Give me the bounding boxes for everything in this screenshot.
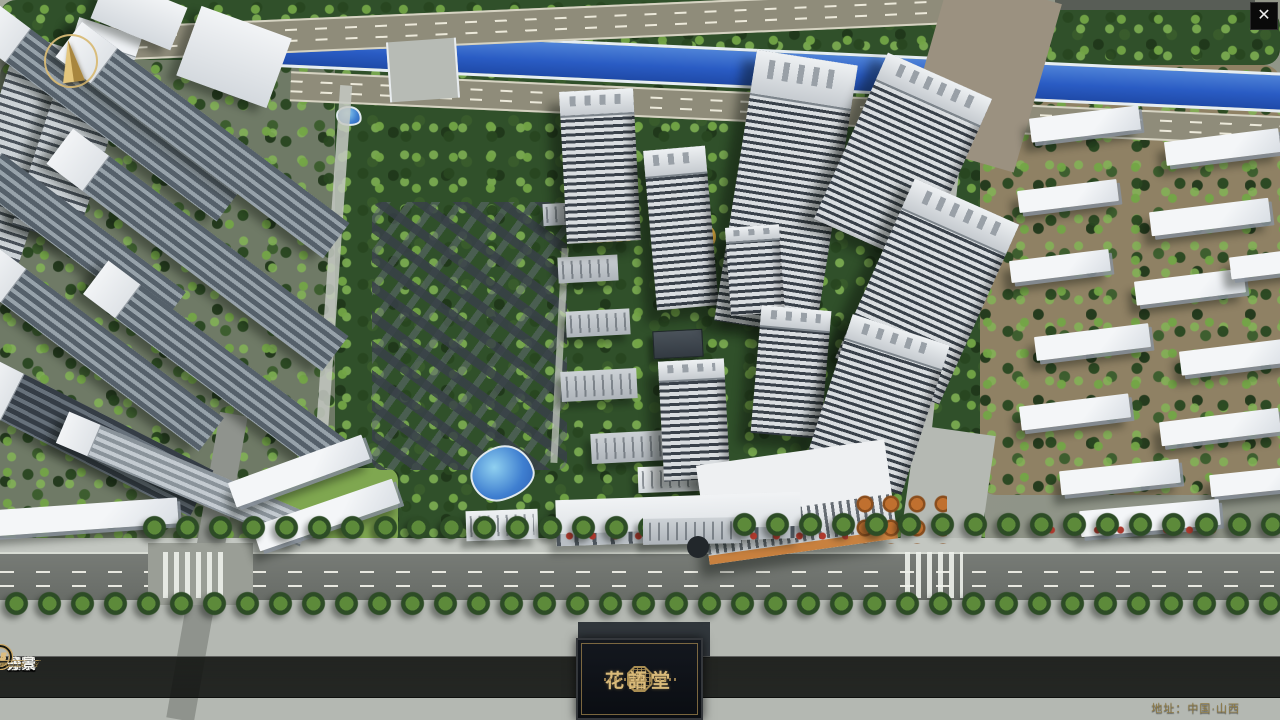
tree-row [138, 514, 643, 554]
bridge [386, 38, 460, 103]
entrance-plaza-circle [687, 536, 709, 558]
project-address: 地址：中国·山西 [1151, 700, 1240, 716]
tree-row [0, 590, 1280, 640]
masterplan-3d-rendering[interactable] [0, 0, 1280, 720]
brand-logo-panel: 花語堂 [576, 638, 703, 720]
lowrise-building [590, 430, 669, 464]
lowrise-building [557, 254, 618, 283]
nav-label-en: COMMUNITY [0, 660, 27, 670]
clubhouse-pavilion [652, 329, 703, 360]
tree-row [728, 511, 1280, 553]
lowrise-building [560, 368, 637, 402]
app-window: ✕ o1 品牌 · 介绍BRAND SUPPORT o2 区位 · 价值LOCA… [0, 0, 1280, 720]
brand-subtitle-line [604, 678, 676, 681]
trees [1040, 10, 1280, 65]
courtyard-homes [372, 202, 567, 470]
close-button[interactable]: ✕ [1250, 2, 1278, 30]
highrise-tower [559, 88, 641, 244]
lowrise-building [565, 308, 630, 337]
highrise-tower [725, 224, 785, 316]
